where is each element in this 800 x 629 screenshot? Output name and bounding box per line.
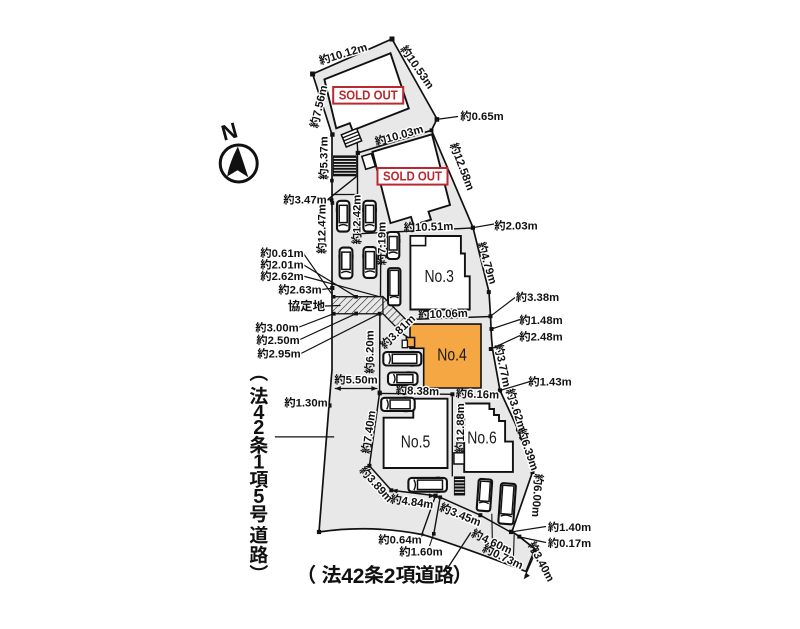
svg-text:SOLD OUT: SOLD OUT [339,89,398,103]
svg-text:6.20m: 6.20m [365,330,377,362]
svg-text:1.60m: 1.60m [411,547,443,559]
svg-text:0.65m: 0.65m [472,111,504,123]
svg-text:No.5: No.5 [401,432,431,452]
svg-text:5: 5 [253,486,264,508]
svg-text:2.95m: 2.95m [269,349,301,361]
svg-text:5.37m: 5.37m [319,136,331,168]
svg-text:No.4: No.4 [437,345,467,365]
svg-text:1.43m: 1.43m [540,377,572,389]
svg-text:2.03m: 2.03m [506,221,538,233]
svg-text:0.61m: 0.61m [272,248,304,260]
svg-text:6.16m: 6.16m [467,389,499,402]
svg-text:SOLD OUT: SOLD OUT [383,170,442,184]
svg-text:2.63m: 2.63m [290,285,322,297]
svg-text:8.38m: 8.38m [407,385,439,398]
svg-text:2: 2 [353,565,365,588]
svg-text:3.00m: 3.00m [267,323,299,335]
svg-text:1: 1 [253,451,264,473]
svg-text:10.06m: 10.06m [429,308,468,321]
svg-text:No.3: No.3 [424,266,454,286]
svg-text:1.48m: 1.48m [531,315,563,327]
svg-text:3.38m: 3.38m [527,292,559,304]
svg-text:2.62m: 2.62m [272,271,304,283]
svg-text:12.88m: 12.88m [455,403,467,441]
svg-text:6.00m: 6.00m [529,485,543,518]
svg-text:7.19m: 7.19m [377,222,389,254]
svg-text:1.30m: 1.30m [296,398,328,410]
svg-text:10.51m: 10.51m [415,221,454,234]
svg-text:2: 2 [384,565,396,588]
svg-text:0.17m: 0.17m [559,538,591,550]
svg-text:12.42m: 12.42m [352,195,364,233]
svg-text:2.48m: 2.48m [531,332,563,344]
svg-text:4: 4 [341,565,353,588]
svg-text:2.01m: 2.01m [272,260,304,272]
svg-text:0.64m: 0.64m [390,535,422,547]
svg-text:1.40m: 1.40m [559,522,591,534]
svg-text:No.6: No.6 [467,428,497,448]
svg-text:2.50m: 2.50m [268,335,300,347]
svg-text:2: 2 [253,417,264,439]
svg-text:5.50m: 5.50m [346,375,378,387]
svg-text:12.47m: 12.47m [317,204,329,242]
